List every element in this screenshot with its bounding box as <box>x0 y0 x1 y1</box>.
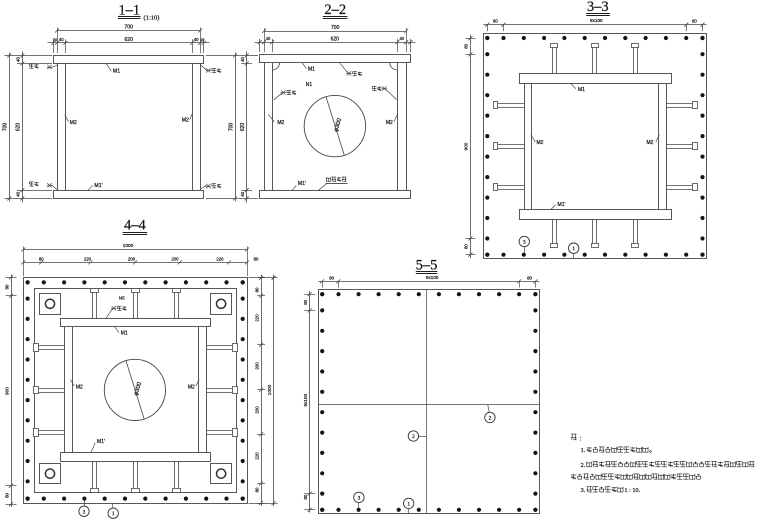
svg-text:9x100: 9x100 <box>303 394 308 407</box>
svg-text:80: 80 <box>303 494 308 499</box>
svg-text:40: 40 <box>16 57 21 62</box>
svg-text:900: 900 <box>464 142 469 150</box>
svg-text:1000: 1000 <box>123 243 134 249</box>
svg-text:N1: N1 <box>306 82 313 88</box>
svg-text:80: 80 <box>254 257 259 262</box>
svg-text:1: 1 <box>572 246 575 252</box>
svg-text:M1′: M1′ <box>97 439 105 445</box>
svg-text:40: 40 <box>399 36 404 41</box>
svg-text:200: 200 <box>254 362 259 370</box>
svg-text:620: 620 <box>331 36 340 42</box>
svg-text:80: 80 <box>4 493 9 498</box>
svg-text:M1′: M1′ <box>298 181 306 187</box>
svg-text:220: 220 <box>254 452 259 460</box>
svg-text:9x100: 9x100 <box>426 275 439 280</box>
svg-text:200: 200 <box>128 257 136 262</box>
svg-text:80: 80 <box>303 299 308 304</box>
svg-text:40: 40 <box>16 191 21 196</box>
svg-text:40: 40 <box>266 36 271 41</box>
svg-text:40: 40 <box>194 37 199 42</box>
svg-text:900: 900 <box>4 387 9 395</box>
svg-text:1: 1 <box>407 501 410 507</box>
svg-text:80: 80 <box>493 19 498 24</box>
svg-text:80: 80 <box>692 19 697 24</box>
svg-text:40: 40 <box>59 37 64 42</box>
svg-text:M1′: M1′ <box>94 183 102 189</box>
svg-text:1.: 1. <box>581 447 586 454</box>
svg-text:M2: M2 <box>277 120 284 126</box>
svg-text:4–4: 4–4 <box>124 218 147 234</box>
svg-text:M2: M2 <box>188 384 195 390</box>
svg-text:9x100: 9x100 <box>590 18 603 23</box>
svg-text:M2: M2 <box>182 118 189 124</box>
svg-text:1: 1 <box>112 511 115 517</box>
svg-text:2: 2 <box>412 434 415 440</box>
svg-text:M1: M1 <box>578 87 585 93</box>
svg-text:200: 200 <box>171 257 179 262</box>
svg-text:M2: M2 <box>386 120 393 126</box>
svg-text:3: 3 <box>83 509 86 515</box>
svg-text:M2: M2 <box>537 140 544 146</box>
svg-text:80: 80 <box>527 275 532 280</box>
svg-text:M1: M1 <box>113 69 120 75</box>
svg-text:200: 200 <box>254 406 259 414</box>
svg-text:220: 220 <box>254 314 259 322</box>
svg-text:80: 80 <box>254 287 259 292</box>
svg-text:620: 620 <box>125 37 134 43</box>
svg-text:M1′: M1′ <box>558 202 566 208</box>
svg-text:M2: M2 <box>70 120 77 126</box>
svg-text:80: 80 <box>4 284 9 289</box>
svg-text:80: 80 <box>254 487 259 492</box>
svg-text:2.: 2. <box>581 462 586 469</box>
svg-text:M2: M2 <box>647 140 654 146</box>
svg-text:3: 3 <box>358 495 361 501</box>
svg-text:3.: 3. <box>581 487 586 494</box>
svg-text:620: 620 <box>240 123 246 132</box>
svg-text:80: 80 <box>39 257 44 262</box>
svg-text:1000: 1000 <box>267 384 273 395</box>
svg-text:40: 40 <box>240 57 245 62</box>
svg-text:620: 620 <box>16 123 22 132</box>
svg-text:80: 80 <box>464 43 469 48</box>
svg-text:3: 3 <box>523 240 526 246</box>
svg-text:700: 700 <box>3 123 9 132</box>
svg-text:80: 80 <box>329 275 334 280</box>
svg-text:M2: M2 <box>76 384 83 390</box>
svg-text:40: 40 <box>240 191 245 196</box>
svg-text:2: 2 <box>489 416 492 422</box>
svg-text:(1:10): (1:10) <box>144 14 160 21</box>
svg-text:1 : 10.: 1 : 10. <box>625 487 641 494</box>
svg-text:N5: N5 <box>119 295 125 300</box>
svg-text:700: 700 <box>125 25 134 31</box>
svg-text:220: 220 <box>216 257 224 262</box>
svg-text:700: 700 <box>331 25 340 31</box>
svg-text:80: 80 <box>464 244 469 249</box>
svg-text::: : <box>580 435 582 442</box>
svg-text:2–2: 2–2 <box>324 2 346 18</box>
svg-text:M1: M1 <box>121 331 128 337</box>
svg-text:3–3: 3–3 <box>587 0 609 15</box>
svg-text:700: 700 <box>228 123 234 132</box>
svg-text:M1: M1 <box>308 66 315 72</box>
svg-text:220: 220 <box>84 257 92 262</box>
